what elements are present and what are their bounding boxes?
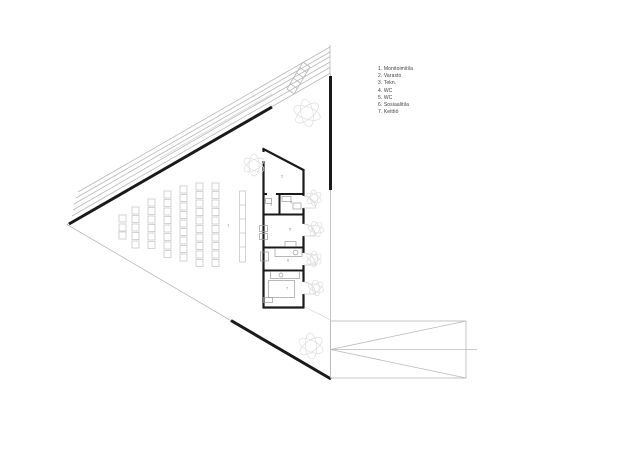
tree	[305, 190, 323, 207]
legend-item: 6. Sosiaalitila	[378, 102, 413, 109]
room-label-7: 7	[286, 286, 289, 291]
chair-column-6	[196, 183, 203, 267]
room-label-2: 2	[281, 174, 284, 179]
room-label-5: 5	[289, 227, 292, 232]
legend: 1. Monitoimitila 2. Varasto 3. Tekn. 4. …	[378, 66, 413, 116]
door-swings	[304, 196, 316, 294]
annex-roof-plan	[331, 321, 478, 378]
legend-item: 3. Tekn.	[378, 80, 413, 87]
room-fixtures	[260, 197, 303, 303]
floor-plan-sheet: 1 2 3 4 5 6 7 1. Monitoimitila 2. Varast…	[0, 0, 640, 450]
tree	[297, 333, 325, 360]
chair-column-5	[180, 186, 187, 261]
tree	[292, 98, 322, 128]
floor-plan-canvas: 1 2 3 4 5 6 7	[0, 0, 640, 450]
room-label-1: 1	[227, 223, 230, 228]
room-number-labels: 1 2 3 4 5 6 7	[227, 174, 293, 291]
chair-grid	[119, 183, 219, 267]
legend-item: 2. Varasto	[378, 73, 413, 80]
chair-column-1	[119, 215, 126, 239]
legend-item: 7. Keittiö	[378, 109, 413, 116]
trees	[242, 98, 325, 359]
room-label-6: 6	[287, 258, 290, 263]
chair-column-7	[212, 183, 219, 267]
room-label-3: 3	[270, 202, 273, 207]
legend-item: 1. Monitoimitila	[378, 66, 413, 73]
legend-item: 5. WC	[378, 95, 413, 102]
tree	[307, 220, 324, 237]
room-label-4: 4	[290, 200, 293, 205]
chair-column-3	[148, 199, 155, 249]
chair-column-4	[164, 191, 171, 258]
long-table	[240, 191, 246, 262]
roof-stair-detail	[287, 62, 310, 94]
legend-item: 4. WC	[378, 88, 413, 95]
chair-column-2	[132, 207, 139, 248]
